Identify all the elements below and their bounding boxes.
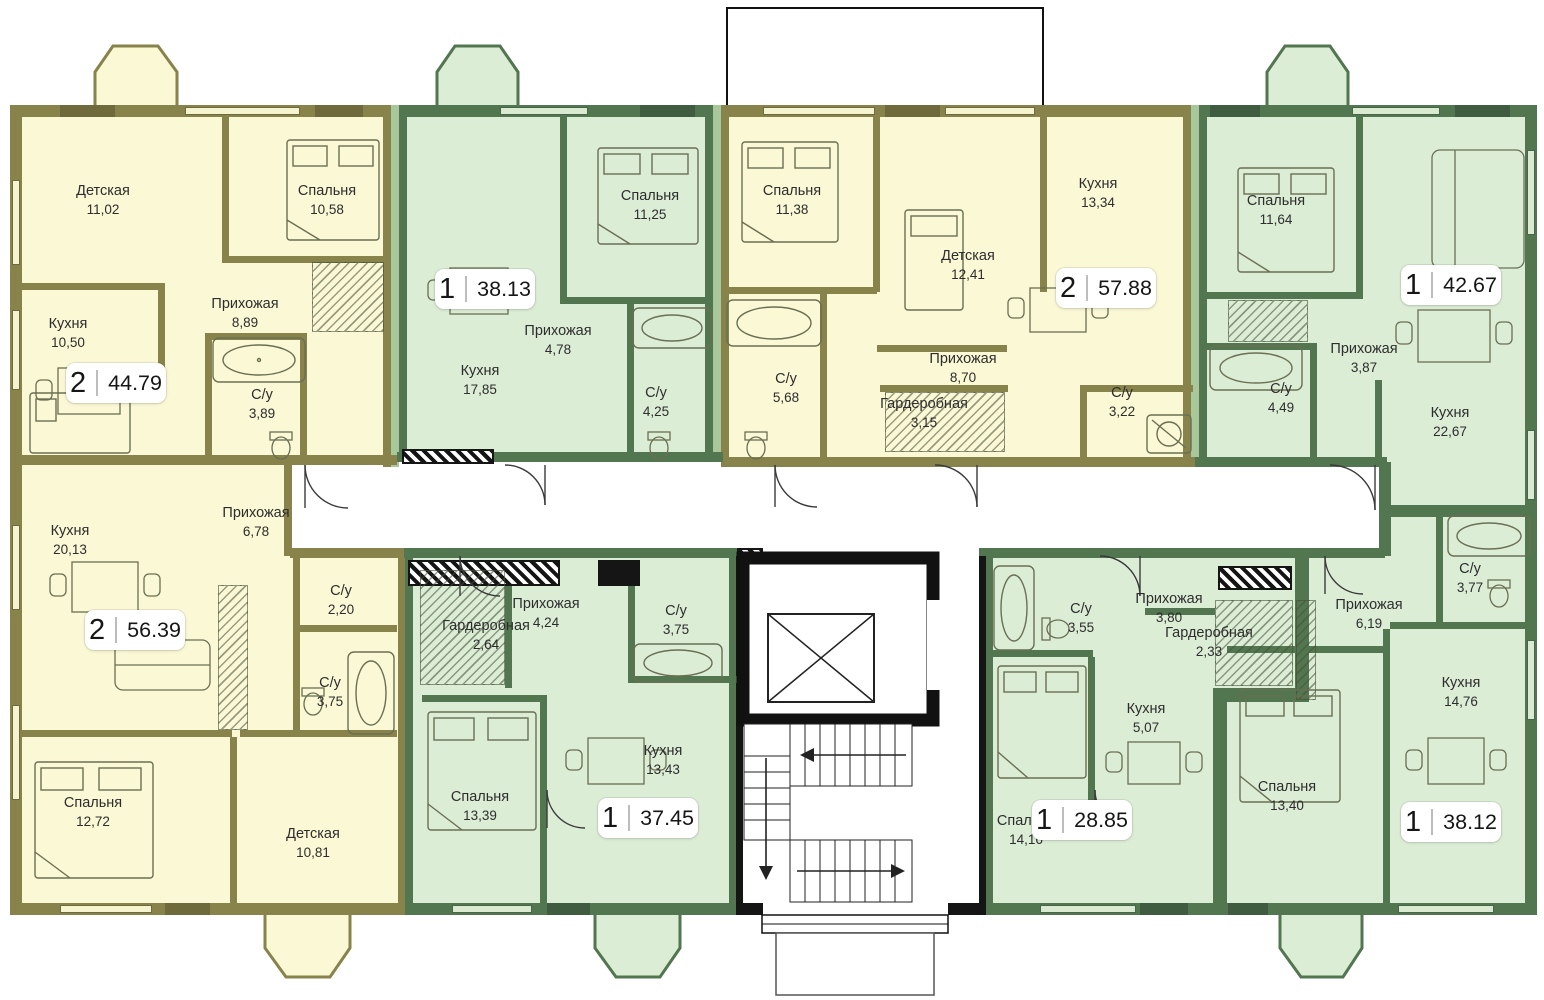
room-label: Гардеробная2,64 — [442, 617, 530, 653]
room-area: 5,07 — [1127, 719, 1166, 736]
badge-divider — [1431, 809, 1433, 835]
vent-shaft-hatch — [402, 449, 494, 464]
wall-segment — [290, 548, 408, 558]
window — [1040, 905, 1136, 913]
room-label: Прихожая3,87 — [1330, 340, 1397, 376]
room-label: Кухня14,76 — [1442, 674, 1481, 710]
apartment-badge[interactable]: 138.13 — [435, 269, 535, 309]
room-label: С/у3,55 — [1068, 600, 1094, 636]
wall-segment — [404, 548, 737, 558]
room-label: Кухня17,85 — [461, 362, 500, 398]
wall-column — [315, 105, 363, 117]
room-name: Детская — [76, 182, 130, 201]
window — [60, 905, 152, 913]
room-name: С/у — [1268, 380, 1294, 399]
room-label: Кухня20,13 — [51, 522, 90, 558]
wall-segment — [1213, 688, 1227, 915]
room-name: Прихожая — [211, 295, 278, 314]
room-label: С/у3,75 — [663, 602, 689, 638]
window — [12, 180, 20, 265]
room-area: 8,89 — [211, 314, 278, 331]
room-label: Гардеробная2,33 — [1165, 624, 1253, 660]
wall-column — [1228, 903, 1268, 915]
badge-rooms-count: 1 — [1036, 804, 1052, 837]
room-name: Кухня — [1442, 674, 1481, 693]
room-area: 22,67 — [1431, 423, 1470, 440]
floor-plan: Детская11,02 Спальня10,58 Кухня10,50 При… — [0, 0, 1544, 1000]
room-area: 6,78 — [222, 523, 289, 540]
window — [1527, 430, 1535, 500]
room-name: Гардеробная — [442, 617, 530, 636]
room-name: Спальня — [451, 788, 509, 807]
room-area: 5,68 — [773, 389, 799, 406]
room-area: 17,85 — [461, 381, 500, 398]
wall-segment — [729, 556, 736, 915]
room-name: Кухня — [51, 522, 90, 541]
room-area: 4,25 — [643, 403, 669, 420]
wall-partition — [22, 283, 162, 290]
room-label: Детская12,41 — [941, 247, 995, 283]
room-label: Гардеробная3,15 — [880, 395, 968, 431]
room-area: 11,38 — [763, 201, 821, 218]
wall-partition — [880, 385, 1008, 392]
badge-rooms-count: 2 — [89, 614, 105, 647]
room-area: 10,58 — [298, 201, 356, 218]
room-label: Прихожая4,78 — [524, 322, 591, 358]
room-label: Спальня13,40 — [1258, 778, 1316, 814]
wall-partition — [205, 333, 212, 455]
wall-segment — [721, 105, 729, 467]
room-name: Кухня — [461, 362, 500, 381]
room-name: Прихожая — [512, 595, 579, 614]
wall-partition — [873, 117, 880, 292]
wall-segment — [398, 558, 405, 915]
stair-core — [737, 554, 985, 904]
window — [1527, 640, 1535, 720]
wall-segment — [979, 556, 986, 915]
room-name: С/у — [328, 582, 354, 601]
badge-total-area: 38.12 — [1443, 810, 1497, 835]
wardrobe-area — [1228, 300, 1308, 342]
room-name: С/у — [1457, 560, 1483, 579]
vent-shaft-hatch — [737, 548, 763, 606]
wall-partition — [1040, 117, 1047, 292]
badge-total-area: 28.85 — [1074, 808, 1128, 833]
room-name: Кухня — [644, 742, 683, 761]
wall-segment — [736, 556, 743, 915]
wall-partition — [540, 695, 547, 915]
wall-segment — [391, 105, 399, 467]
window — [500, 107, 588, 115]
room-area: 3,22 — [1109, 403, 1135, 420]
vent-shaft — [598, 560, 640, 586]
room-area: 13,43 — [644, 761, 683, 778]
room-name: Прихожая — [929, 350, 996, 369]
room-name: Гардеробная — [880, 395, 968, 414]
badge-rooms-count: 1 — [439, 273, 455, 306]
wall-partition — [230, 737, 237, 915]
badge-divider — [1062, 807, 1064, 833]
window — [1352, 107, 1440, 115]
room-name: С/у — [1068, 600, 1094, 619]
room-name: С/у — [773, 370, 799, 389]
window — [452, 905, 532, 913]
badge-divider — [96, 370, 98, 396]
room-area: 6,19 — [1335, 615, 1402, 632]
room-name: С/у — [663, 602, 689, 621]
room-area: 4,49 — [1268, 399, 1294, 416]
badge-divider — [628, 805, 630, 831]
wardrobe-area — [218, 585, 248, 730]
wall-segment — [986, 556, 993, 915]
bay-window — [1267, 46, 1348, 112]
room-area: 4,78 — [524, 341, 591, 358]
room-name: С/у — [317, 674, 343, 693]
wall-segment — [399, 105, 407, 462]
window — [12, 310, 20, 390]
wardrobe-area — [1296, 600, 1316, 700]
room-name: Спальня — [763, 182, 821, 201]
wall-segment — [1195, 457, 1387, 467]
wall-partition — [1088, 657, 1095, 817]
room-name: Спальня — [1258, 778, 1316, 797]
room-label: Прихожая6,19 — [1335, 596, 1402, 632]
wall-segment — [705, 105, 713, 462]
badge-total-area: 57.88 — [1098, 276, 1152, 301]
entrance-porch — [762, 915, 948, 933]
wall-segment — [1183, 105, 1191, 467]
badge-total-area: 38.13 — [477, 277, 531, 302]
badge-rooms-count: 1 — [1405, 269, 1421, 302]
room-name: Прихожая — [1335, 596, 1402, 615]
room-name: С/у — [249, 386, 275, 405]
bay-window — [265, 908, 350, 977]
room-label: С/у3,89 — [249, 386, 275, 422]
window — [12, 705, 20, 800]
wall-partition — [1080, 385, 1193, 392]
room-name: Спальня — [1247, 192, 1305, 211]
room-label: Спальня11,38 — [763, 182, 821, 218]
room-area: 3,87 — [1330, 359, 1397, 376]
wall-segment — [1385, 505, 1537, 517]
room-label: С/у3,77 — [1457, 560, 1483, 596]
badge-total-area: 42.67 — [1443, 273, 1497, 298]
bay-window — [95, 46, 177, 112]
wall-partition — [205, 333, 307, 340]
wall-column — [1140, 903, 1188, 915]
wall-partition — [293, 625, 397, 632]
room-area: 11,02 — [76, 201, 130, 218]
wall-partition — [627, 304, 634, 452]
wall-column — [540, 903, 590, 915]
badge-divider — [1086, 275, 1088, 301]
badge-total-area: 44.79 — [108, 371, 162, 396]
wall-column — [885, 105, 940, 117]
wall-column — [60, 105, 115, 117]
room-label: Спальня13,39 — [451, 788, 509, 824]
window — [12, 525, 20, 610]
room-area: 14,76 — [1442, 693, 1481, 710]
room-label: Прихожая3,80 — [1135, 590, 1202, 626]
room-area: 13,40 — [1258, 797, 1316, 814]
room-label: Прихожая8,70 — [929, 350, 996, 386]
room-name: С/у — [1109, 384, 1135, 403]
wall-column — [1455, 105, 1510, 117]
room-name: Спальня — [621, 187, 679, 206]
bay-window — [595, 908, 680, 977]
wall-partition — [422, 695, 542, 702]
room-area: 2,20 — [328, 601, 354, 618]
badge-rooms-count: 2 — [70, 367, 86, 400]
wall-segment — [1199, 105, 1207, 462]
window — [185, 107, 300, 115]
room-label: Кухня10,50 — [49, 315, 88, 351]
room-label: С/у4,49 — [1268, 380, 1294, 416]
window — [1398, 905, 1494, 913]
room-label: С/у3,22 — [1109, 384, 1135, 420]
badge-rooms-count: 1 — [1405, 806, 1421, 839]
room-label: Кухня22,67 — [1431, 404, 1470, 440]
room-name: Детская — [941, 247, 995, 266]
room-area: 12,41 — [941, 266, 995, 283]
apartment-badge[interactable]: 137.45 — [598, 798, 698, 838]
wall-segment — [1213, 688, 1309, 702]
room-label: Прихожая6,78 — [222, 504, 289, 540]
entrance-steps — [776, 933, 934, 995]
badge-total-area: 56.39 — [127, 618, 181, 643]
apartment-badge[interactable]: 142.67 — [1401, 265, 1501, 305]
room-area: 12,72 — [64, 813, 122, 830]
room-name: Кухня — [1431, 404, 1470, 423]
roof-shaft-outline — [727, 8, 1043, 108]
room-name: Гардеробная — [1165, 624, 1253, 643]
window — [763, 107, 875, 115]
wall-partition — [560, 297, 711, 304]
wall-column — [165, 903, 210, 915]
room-label: Детская11,02 — [76, 182, 130, 218]
room-label: Кухня13,34 — [1079, 175, 1118, 211]
room-name: Прихожая — [222, 504, 289, 523]
wall-partition — [560, 117, 567, 302]
wall-partition — [1383, 629, 1390, 915]
room-area: 8,70 — [929, 369, 996, 386]
room-name: Кухня — [1079, 175, 1118, 194]
room-name: Детская — [286, 825, 340, 844]
room-area: 10,81 — [286, 844, 340, 861]
wall-segment — [1191, 105, 1199, 467]
room-area: 11,25 — [621, 206, 679, 223]
badge-divider — [115, 617, 117, 643]
room-area: 3,55 — [1068, 619, 1094, 636]
badge-rooms-count: 2 — [1060, 272, 1076, 305]
room-label: Прихожая8,89 — [211, 295, 278, 331]
wall-segment — [405, 558, 413, 915]
wall-segment — [979, 548, 1385, 558]
badge-divider — [1431, 272, 1433, 298]
room-label: Спальня12,72 — [64, 794, 122, 830]
wall-partition — [1080, 385, 1087, 457]
room-area: 20,13 — [51, 541, 90, 558]
wall-partition — [628, 676, 737, 683]
room-label: Спальня11,25 — [621, 187, 679, 223]
room-name: Прихожая — [524, 322, 591, 341]
wall-partition — [1310, 343, 1317, 457]
room-label: Кухня5,07 — [1127, 700, 1166, 736]
wall-partition — [222, 117, 229, 263]
room-label: Спальня10,58 — [298, 182, 356, 218]
bay-window — [1280, 908, 1362, 977]
room-name: Прихожая — [1330, 340, 1397, 359]
room-area: 2,64 — [442, 636, 530, 653]
badge-divider — [465, 276, 467, 302]
room-name: С/у — [643, 384, 669, 403]
room-area: 2,33 — [1165, 643, 1253, 660]
wall-column — [640, 105, 695, 117]
wall-segment — [723, 457, 1195, 467]
room-name: Спальня — [298, 182, 356, 201]
bay-window — [437, 46, 518, 112]
wall-partition — [293, 558, 300, 733]
wall-segment — [10, 455, 397, 465]
wall-partition — [820, 287, 827, 457]
wall-partition — [993, 650, 1093, 657]
room-area: 3,75 — [317, 693, 343, 710]
room-label: С/у4,25 — [643, 384, 669, 420]
wall-partition — [1356, 117, 1363, 295]
room-label: Детская10,81 — [286, 825, 340, 861]
wardrobe-area — [312, 262, 384, 332]
room-area: 3,89 — [249, 405, 275, 422]
room-area: 3,75 — [663, 621, 689, 638]
room-name: Спальня — [64, 794, 122, 813]
apartment-badge[interactable]: 128.85 — [1032, 800, 1132, 840]
badge-total-area: 37.45 — [640, 806, 694, 831]
room-label: С/у3,75 — [317, 674, 343, 710]
wall-segment — [383, 105, 391, 467]
wall-segment — [713, 105, 721, 462]
room-area: 13,34 — [1079, 194, 1118, 211]
room-area: 3,15 — [880, 414, 968, 431]
wall-partition — [1436, 517, 1443, 629]
wall-column — [1210, 105, 1260, 117]
window — [1527, 150, 1535, 235]
room-area: 11,64 — [1247, 211, 1305, 228]
vent-shaft-hatch — [1218, 566, 1292, 590]
wall-partition — [1207, 343, 1317, 350]
room-label: С/у2,20 — [328, 582, 354, 618]
wall-partition — [723, 287, 877, 294]
room-name: Прихожая — [1135, 590, 1202, 609]
wall-partition — [22, 730, 232, 737]
window — [945, 107, 1035, 115]
badge-rooms-count: 1 — [602, 802, 618, 835]
wall-partition — [300, 333, 307, 455]
room-label: Спальня11,64 — [1247, 192, 1305, 228]
apartment-badge[interactable]: 256.39 — [85, 610, 185, 650]
room-area: 13,39 — [451, 807, 509, 824]
wall-partition — [1207, 292, 1363, 299]
room-name: Кухня — [49, 315, 88, 334]
wall-partition — [240, 730, 397, 737]
room-name: Кухня — [1127, 700, 1166, 719]
apartment-badge[interactable]: 244.79 — [66, 363, 166, 403]
wall-partition — [1390, 622, 1537, 629]
corridor — [292, 462, 1385, 554]
wall-partition — [1375, 380, 1382, 462]
room-area: 10,50 — [49, 334, 88, 351]
apartment-badge[interactable]: 138.12 — [1401, 802, 1501, 842]
room-area: 3,77 — [1457, 579, 1483, 596]
room-label: С/у5,68 — [773, 370, 799, 406]
apartment-badge[interactable]: 257.88 — [1056, 268, 1156, 308]
room-label: Кухня13,43 — [644, 742, 683, 778]
